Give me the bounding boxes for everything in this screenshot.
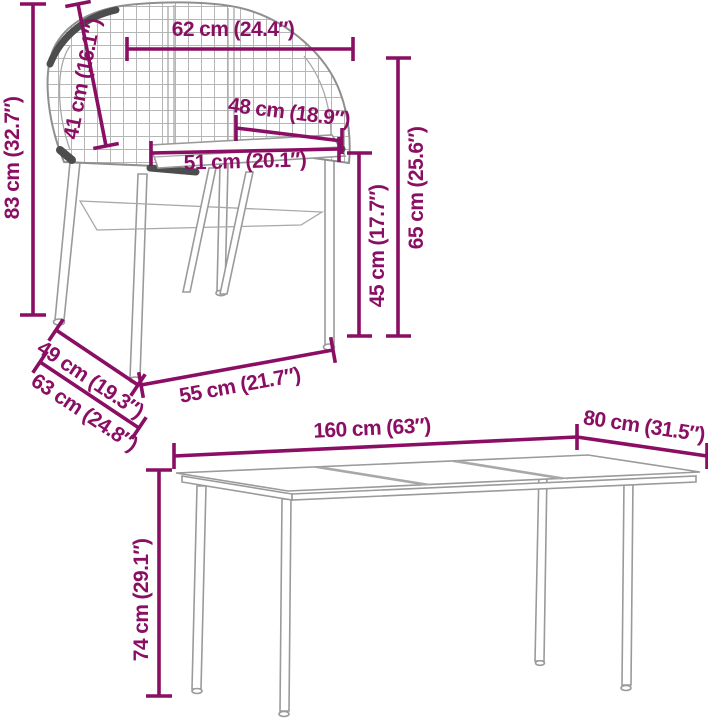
dim-line-table-height bbox=[146, 470, 172, 696]
dim-line-chair-base-width bbox=[139, 337, 336, 398]
dim-line-chair-depth-upper bbox=[49, 319, 145, 396]
dim-line-chair-total-height bbox=[20, 4, 46, 315]
dimension-lines bbox=[0, 0, 708, 720]
dim-line-chair-seat-height bbox=[347, 153, 372, 336]
dim-line-chair-seat-width bbox=[151, 137, 339, 166]
dimension-diagram: 83 cm (32.7″) 41 cm (16.1″) 62 cm (24.4″… bbox=[0, 0, 708, 720]
dim-line-chair-top-width bbox=[127, 37, 353, 61]
dim-line-chair-arm-height bbox=[386, 58, 411, 336]
dim-line-chair-depth-total bbox=[33, 351, 146, 439]
dim-line-table-width bbox=[577, 437, 707, 469]
dim-line-chair-back-height bbox=[65, 2, 118, 149]
dim-line-table-length bbox=[174, 424, 577, 469]
